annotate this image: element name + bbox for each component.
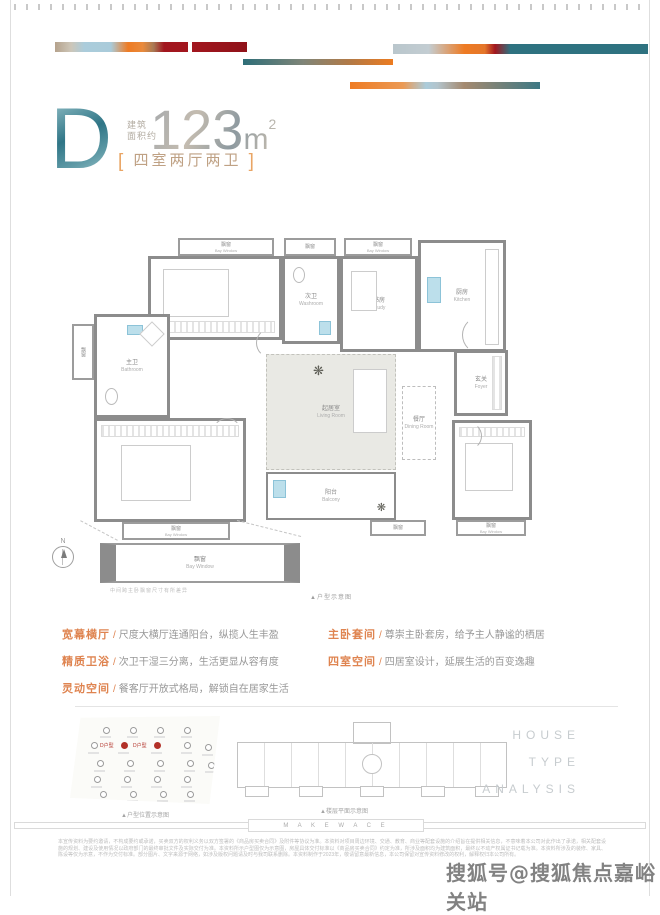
feature-item: 四室空间/四居室设计，延展生活的百变逸趣 <box>328 653 545 669</box>
compass-needle-icon <box>61 549 67 558</box>
floor-plate-diagram <box>237 722 507 804</box>
area-exponent: 2 <box>268 116 276 132</box>
site-plan-caption: ▲户型位置示意图 <box>70 810 220 819</box>
foyer-closet-hatch <box>492 356 502 410</box>
shower-corner <box>139 321 164 346</box>
door-arc <box>454 422 482 450</box>
feature-desc: 次卫干湿三分离，生活更显从容有度 <box>119 657 279 668</box>
feature-item: 精质卫浴/次卫干湿三分离，生活更显从容有度 <box>62 653 289 669</box>
bay-window-label-cn: 飘窗 <box>194 556 206 564</box>
feature-item: 宽幕横厅/尺度大横厅连通阳台，纵揽人生丰盈 <box>62 626 289 642</box>
site-building-highlighted <box>121 742 128 749</box>
features-left-column: 宽幕横厅/尺度大横厅连通阳台，纵揽人生丰盈 精质卫浴/次卫干湿三分离，生活更显从… <box>62 626 289 707</box>
feature-desc: 尊崇主卧套房，给予主人静谧的栖居 <box>385 630 545 641</box>
compass: N <box>48 538 78 568</box>
wardrobe-hatch <box>155 321 275 333</box>
site-building-dot <box>184 742 191 749</box>
door-arc <box>212 418 242 448</box>
site-building-dot <box>130 727 137 734</box>
site-building-label-mark <box>124 770 135 772</box>
feature-title: 主卧套间 <box>328 629 376 641</box>
desk-furniture <box>351 271 377 311</box>
site-building-label-mark <box>127 736 138 738</box>
room-label-cn: 餐厅 <box>413 416 425 424</box>
bay-window-top-3: 飘窗 Bay Window <box>344 238 412 256</box>
unit-type-letter: D <box>50 96 112 182</box>
site-red-label: D户型 <box>133 742 147 749</box>
site-building-dot <box>187 760 194 767</box>
analysis-line: TYPE <box>482 755 580 769</box>
site-building-dot <box>91 742 98 749</box>
site-building-label-mark <box>181 736 192 738</box>
site-building-label-mark <box>181 786 192 788</box>
site-building-dot <box>97 760 104 767</box>
room-label-en: Dining Room <box>405 424 434 430</box>
bay-window-bottom-2: 飘窗 Bay Window <box>456 520 526 536</box>
site-building-dot <box>160 791 167 798</box>
room-label-en: Living Room <box>317 413 345 419</box>
room-label-cn: 阳台 <box>325 489 337 497</box>
feature-title: 灵动空间 <box>62 683 110 695</box>
plate-balcony-block <box>245 786 269 797</box>
plate-balcony-block <box>360 786 384 797</box>
room-study: 书房 Study <box>340 256 418 352</box>
site-building-dot <box>154 776 161 783</box>
site-red-label: D户型 <box>100 742 114 749</box>
room-living: ❋ 起居室 Living Room <box>266 354 396 470</box>
door-arc <box>256 328 286 358</box>
room-foyer: 玄关 Foyer <box>454 350 508 416</box>
site-building-dot <box>157 760 164 767</box>
bed-furniture <box>465 443 513 491</box>
bay-window-bottom-1: 飘窗 <box>370 520 426 536</box>
room-label-en: Kitchen <box>454 297 471 303</box>
bed-furniture <box>121 445 191 501</box>
room-label-en: Balcony <box>322 497 340 503</box>
bay-window-top-1: 飘窗 Bay Window <box>178 238 274 256</box>
washer-fixture <box>273 480 286 498</box>
feature-separator: / <box>113 630 116 641</box>
site-building-label-mark <box>88 752 99 754</box>
site-building-label-mark <box>97 800 108 802</box>
site-building-highlighted <box>154 742 161 749</box>
feature-item: 灵动空间/餐客厅开放式格局，解锁自在居家生活 <box>62 680 289 696</box>
site-plan: D户型D户型 <box>70 716 220 804</box>
site-building-label-mark <box>121 786 132 788</box>
site-building-dot <box>157 727 164 734</box>
plate-balcony-block <box>299 786 323 797</box>
site-building-dot <box>127 760 134 767</box>
features-right-column: 主卧套间/尊崇主卧套房，给予主人静谧的栖居 四室空间/四居室设计，延展生活的百变… <box>328 626 545 680</box>
bay-window-note: 中间跨主卧飘窗尺寸有所差异 <box>110 587 188 594</box>
site-building-label-mark <box>181 752 192 754</box>
site-building-label-mark <box>205 771 216 773</box>
deco-bar-lower <box>350 82 540 89</box>
site-building-label-mark <box>151 786 162 788</box>
analysis-line: ANALYSIS <box>482 782 580 796</box>
feature-item: 主卧套间/尊崇主卧套房，给予主人静谧的栖居 <box>328 626 545 642</box>
sofa-furniture <box>353 369 387 433</box>
bay-window-label-en: Bay Window <box>165 532 187 537</box>
section-divider <box>75 706 618 707</box>
site-building-dot <box>94 776 101 783</box>
room-dining: 餐厅 Dining Room <box>392 380 446 466</box>
feature-title: 四室空间 <box>328 656 376 668</box>
site-building-label-mark <box>154 736 165 738</box>
bay-window-label-en: Bay Window <box>480 529 502 534</box>
plate-balcony-block <box>421 786 445 797</box>
room-label-cn: 厨房 <box>456 289 468 297</box>
bed-furniture <box>163 269 229 317</box>
deco-bar-top-left-2 <box>192 42 247 52</box>
bay-window-label-en: Bay Window <box>186 564 214 570</box>
plant-icon: ❋ <box>377 501 386 514</box>
plate-stair-circle <box>362 754 382 774</box>
footer-brand: M A K E W A C E <box>248 819 424 832</box>
page-border-right <box>649 0 650 896</box>
site-building-label-mark <box>202 754 213 756</box>
page-border-left <box>10 0 11 896</box>
site-building-label-mark <box>184 800 195 802</box>
room-label-en: Bathroom <box>121 367 143 373</box>
site-building-dot <box>184 776 191 783</box>
bay-window-top-2: 飘窗 <box>284 238 336 256</box>
room-label-cn: 次卫 <box>305 293 317 301</box>
analysis-line: HOUSE <box>482 728 580 742</box>
bay-window-master: 飘窗 Bay Window <box>122 522 230 540</box>
floor-plan: 飘窗 Bay Window 飘窗 飘窗 Bay Window 次卧 Bedroo… <box>60 232 540 544</box>
room-label-en: Foyer <box>475 384 488 390</box>
toilet-fixture <box>105 388 118 405</box>
feature-separator: / <box>379 657 382 668</box>
analysis-wordmark: HOUSE TYPE ANALYSIS <box>482 728 580 809</box>
site-building-label-mark <box>157 800 168 802</box>
room-label-cn: 主卫 <box>126 359 138 367</box>
room-label-cn: 玄关 <box>475 376 487 384</box>
site-building-label-mark <box>127 800 138 802</box>
feature-separator: / <box>379 630 382 641</box>
room-bathroom-master: 主卫 Bathroom <box>94 314 170 418</box>
site-building-dot <box>103 727 110 734</box>
watermark: 搜狐号@搜狐焦点嘉峪关站 <box>446 857 660 915</box>
site-building-label-mark <box>184 770 195 772</box>
bracket-left: [ <box>118 151 126 172</box>
feature-title: 宽幕横厅 <box>62 629 110 641</box>
plant-icon: ❋ <box>313 363 324 379</box>
deco-bar-top-left <box>55 42 188 52</box>
bay-window-detail: 飘窗 Bay Window <box>100 543 300 583</box>
site-building-label-mark <box>118 752 129 754</box>
compass-dial <box>52 546 74 568</box>
room-balcony: ❋ 阳台 Balcony <box>266 472 396 520</box>
deco-bar-top-right <box>393 44 648 54</box>
site-building-dot <box>184 727 191 734</box>
site-building-label-mark <box>154 770 165 772</box>
room-label-en: Washroom <box>299 301 323 307</box>
feature-desc: 餐客厅开放式格局，解锁自在居家生活 <box>119 684 289 695</box>
site-building-label-mark <box>91 786 102 788</box>
feature-desc: 四居室设计，延展生活的百变逸趣 <box>385 657 535 668</box>
site-building-label-mark <box>94 770 105 772</box>
site-building-dot <box>187 791 194 798</box>
entry-door-arc <box>462 316 500 354</box>
feature-title: 精质卫浴 <box>62 656 110 668</box>
bay-window-label-cn: 飘窗 <box>393 525 403 531</box>
compass-north-label: N <box>48 538 78 545</box>
bracket-right: ] <box>249 151 257 172</box>
deco-bar-middle <box>243 59 393 65</box>
site-building-dot <box>208 762 215 769</box>
kitchen-sink <box>427 277 441 303</box>
site-building-dot <box>124 776 131 783</box>
layout-description: [ 四室两厅两卫 ] <box>118 149 257 173</box>
toilet-fixture <box>293 267 305 283</box>
site-building-label-mark <box>151 752 162 754</box>
room-washroom: 次卫 Washroom <box>282 256 340 344</box>
bay-window-label-en: Bay Window <box>367 248 389 253</box>
bay-window-label-cn: 飘窗 <box>305 244 315 250</box>
layout-text: 四室两厅两卫 <box>133 152 241 169</box>
disclaimer-text: 本宣传资料为要约邀请，不构成要约或承诺，买卖双方的权利义务以双方签署的《商品房买… <box>58 839 606 859</box>
washroom-sink <box>319 321 331 335</box>
site-building-dot <box>100 791 107 798</box>
bay-window-label-en: Bay Window <box>215 248 237 253</box>
bay-window-label-cn: 飘窗 <box>80 347 86 357</box>
feature-separator: / <box>113 684 116 695</box>
floor-plate-caption: ▲楼层平面示意图 <box>320 806 368 815</box>
site-building-dot <box>130 791 137 798</box>
room-label-cn: 起居室 <box>322 405 340 413</box>
feature-desc: 尺度大横厅连通阳台，纵揽人生丰盈 <box>119 630 279 641</box>
site-building-dot <box>205 744 212 751</box>
feature-separator: / <box>113 657 116 668</box>
top-tick-border <box>14 4 646 10</box>
site-building-label-mark <box>100 736 111 738</box>
floor-plan-caption: ▲户型示意图 <box>310 592 352 601</box>
plate-core-block <box>353 722 391 744</box>
bay-window-left: 飘窗 <box>72 324 94 380</box>
